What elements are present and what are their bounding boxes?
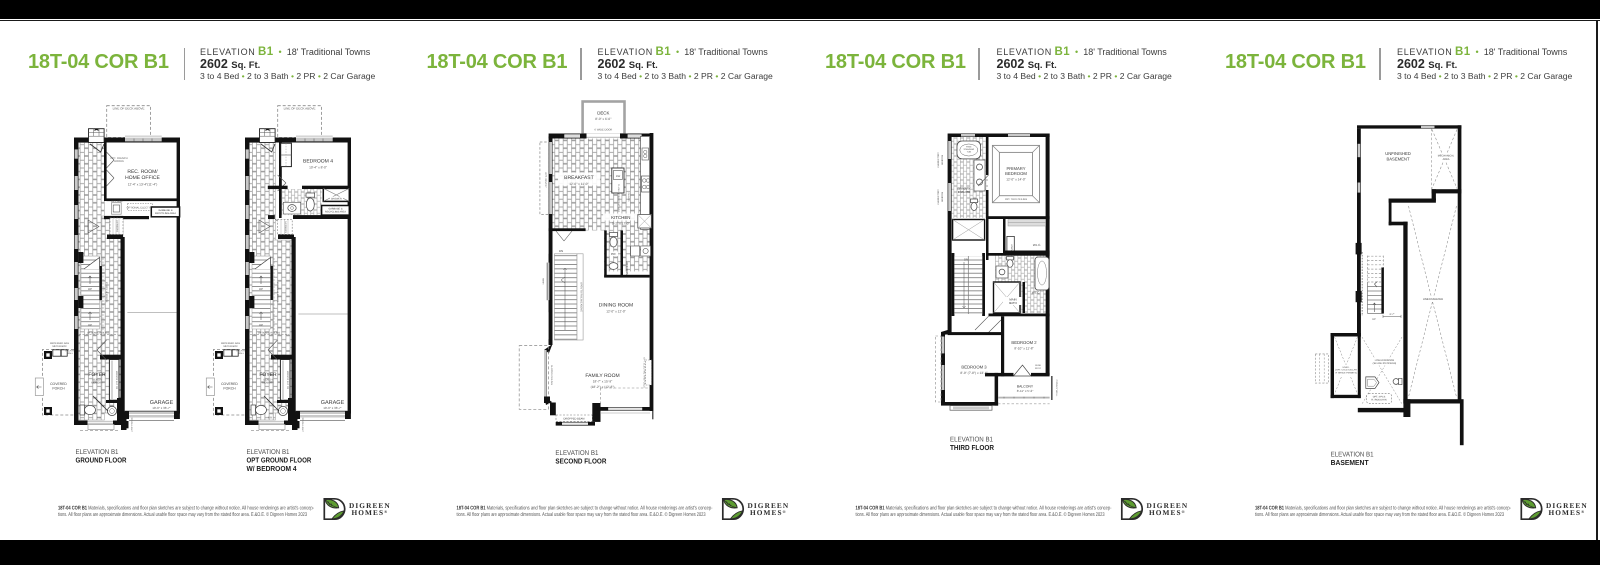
svg-text:12'-0" x 14'-0": 12'-0" x 14'-0" bbox=[1006, 178, 1026, 182]
svg-text:MIRROR SLD DR: MIRROR SLD DR bbox=[286, 371, 289, 390]
svg-text:PORCH: PORCH bbox=[52, 387, 65, 391]
svg-text:UP: UP bbox=[1372, 318, 1376, 321]
svg-text:HALF HT: HALF HT bbox=[65, 350, 75, 353]
svg-text:BASEMENT: BASEMENT bbox=[1386, 157, 1409, 162]
svg-text:OPTIONAL RAILING: OPTIONAL RAILING bbox=[258, 331, 280, 334]
svg-text:TUB: TUB bbox=[967, 151, 972, 154]
svg-text:SHOWER: SHOWER bbox=[331, 197, 342, 200]
svg-text:BEDROOM 4: BEDROOM 4 bbox=[303, 159, 333, 165]
svg-text:BREAKFAST: BREAKFAST bbox=[564, 175, 593, 181]
svg-text:ROOF: ROOF bbox=[1035, 367, 1042, 370]
svg-text:8'-11" x 5'-2": 8'-11" x 5'-2" bbox=[1017, 389, 1034, 393]
svg-text:W/ BEDROOM 4: W/ BEDROOM 4 bbox=[247, 464, 297, 473]
svg-text:SUNK: SUNK bbox=[1035, 364, 1042, 367]
svg-text:IF GRADE PERMITS): IF GRADE PERMITS) bbox=[1335, 371, 1357, 374]
svg-text:P.R: P.R bbox=[97, 417, 101, 420]
svg-text:GROUND FLOOR: GROUND FLOOR bbox=[76, 456, 128, 465]
svg-text:P.R.: P.R. bbox=[611, 252, 616, 256]
svg-text:WINDOW: WINDOW bbox=[941, 154, 944, 165]
svg-text:10'-4" x 8'-0": 10'-4" x 8'-0" bbox=[309, 166, 327, 170]
svg-text:18'-7" x 15'-9": 18'-7" x 15'-9" bbox=[593, 380, 613, 384]
svg-text:OPEN TO RAILING ABOVE: OPEN TO RAILING ABOVE bbox=[579, 282, 582, 312]
svg-text:THIRD FLOOR: THIRD FLOOR bbox=[950, 443, 995, 452]
svg-text:BASEMENT: BASEMENT bbox=[1331, 458, 1370, 467]
svg-text:CLERESTORY: CLERESTORY bbox=[937, 152, 940, 168]
svg-text:P.R: P.R bbox=[268, 417, 272, 420]
svg-text:tions. All floor plans are app: tions. All floor plans are approximate d… bbox=[58, 512, 307, 518]
svg-text:WALL: WALL bbox=[238, 352, 245, 355]
svg-text:STAIRS 14 RISERS: STAIRS 14 RISERS bbox=[105, 282, 108, 303]
svg-text:DN: DN bbox=[964, 258, 968, 262]
svg-text:UNEXCAVATED: UNEXCAVATED bbox=[1423, 297, 1443, 301]
svg-text:WALL: WALL bbox=[67, 352, 74, 355]
svg-text:FOYER: FOYER bbox=[259, 372, 277, 378]
svg-text:LOW HEADROOM: LOW HEADROOM bbox=[1375, 359, 1394, 362]
svg-text:8'-10" x 11'-8": 8'-10" x 11'-8" bbox=[1014, 347, 1033, 351]
svg-text:3'-7": 3'-7" bbox=[1389, 313, 1394, 316]
svg-text:LINEN: LINEN bbox=[542, 277, 545, 284]
svg-text:UP: UP bbox=[88, 287, 92, 291]
svg-text:ENSUITE: ENSUITE bbox=[958, 190, 971, 194]
svg-text:8'-0" (7'-8") x 13'-4": 8'-0" (7'-8") x 13'-4" bbox=[960, 371, 987, 375]
svg-text:12'-4" x 13'-4"(11'-4"): 12'-4" x 13'-4"(11'-4") bbox=[128, 183, 158, 187]
svg-text:AREA: AREA bbox=[1443, 158, 1450, 161]
svg-text:STAIRS 14 RISERS: STAIRS 14 RISERS bbox=[276, 282, 279, 303]
svg-text:LINEN: LINEN bbox=[1010, 244, 1013, 251]
svg-text:BATH: BATH bbox=[1009, 301, 1017, 305]
svg-text:MIRROR SLD DR: MIRROR SLD DR bbox=[115, 371, 118, 390]
svg-text:tions. All floor plans are app: tions. All floor plans are approximate d… bbox=[1255, 512, 1504, 518]
svg-text:12'-0" x 11'-0": 12'-0" x 11'-0" bbox=[569, 182, 588, 186]
svg-text:PORCH: PORCH bbox=[223, 387, 236, 391]
svg-text:HOMES®: HOMES® bbox=[750, 508, 787, 517]
svg-text:W.I.C.: W.I.C. bbox=[1032, 291, 1040, 295]
svg-text:BEDROOM: BEDROOM bbox=[1005, 171, 1027, 176]
svg-text:DOORS: DOORS bbox=[114, 160, 124, 163]
svg-text:WINDOW: WINDOW bbox=[941, 191, 944, 202]
svg-text:HOMES®: HOMES® bbox=[1549, 508, 1586, 517]
svg-text:ISLAND: ISLAND bbox=[627, 193, 630, 202]
svg-text:10'-0" x 36'-7": 10'-0" x 36'-7" bbox=[323, 406, 341, 410]
svg-text:OPT. PANTRY: OPT. PANTRY bbox=[544, 172, 547, 188]
svg-text:OPT. 3-PCS: OPT. 3-PCS bbox=[1373, 396, 1386, 399]
svg-text:R.I ROUGH-IN: R.I ROUGH-IN bbox=[1371, 399, 1387, 402]
svg-text:(18'-2") x (12'-8"): (18'-2") x (12'-8") bbox=[591, 385, 615, 389]
svg-text:FOYER: FOYER bbox=[88, 372, 106, 378]
svg-text:PRIVACY WALL: PRIVACY WALL bbox=[1055, 380, 1058, 397]
svg-text:DN: DN bbox=[559, 249, 563, 253]
svg-text:OPTIONAL RAILING: OPTIONAL RAILING bbox=[87, 331, 109, 334]
svg-text:(OPT. COLD CELLAR: (OPT. COLD CELLAR bbox=[1335, 369, 1357, 372]
svg-text:DW: DW bbox=[616, 175, 621, 178]
svg-text:HOMES®: HOMES® bbox=[352, 508, 389, 517]
svg-text:KITCHEN: KITCHEN bbox=[611, 215, 630, 220]
svg-text:12'-0" x 12'-0": 12'-0" x 12'-0" bbox=[606, 310, 626, 314]
svg-text:BEDROOM 3: BEDROOM 3 bbox=[961, 365, 987, 370]
svg-text:HOME OFFICE: HOME OFFICE bbox=[125, 175, 160, 181]
svg-text:UNEX.: UNEX. bbox=[1343, 366, 1350, 369]
svg-text:SLOPED CEILING: SLOPED CEILING bbox=[550, 365, 553, 385]
svg-text:HALF HT: HALF HT bbox=[236, 350, 246, 353]
svg-text:(36 HIGH BY DESIGN): (36 HIGH BY DESIGN) bbox=[1373, 362, 1397, 365]
svg-text:tions. All floor plans are app: tions. All floor plans are approximate d… bbox=[457, 512, 706, 518]
svg-text:HOMES®: HOMES® bbox=[1149, 508, 1186, 517]
svg-text:BALCONY: BALCONY bbox=[1017, 385, 1034, 389]
svg-text:18T-04 COR B1 Materials, spec: 18T-04 COR B1 Materials, specifications … bbox=[856, 505, 1112, 511]
svg-text:10'-0" x 36'-7": 10'-0" x 36'-7" bbox=[152, 406, 170, 410]
svg-text:UP: UP bbox=[259, 323, 263, 327]
svg-text:COVERED: COVERED bbox=[50, 382, 67, 386]
svg-text:UP: UP bbox=[259, 287, 263, 291]
svg-text:SECOND FLOOR: SECOND FLOOR bbox=[555, 457, 607, 466]
svg-text:FREE: FREE bbox=[966, 146, 972, 149]
svg-text:UP: UP bbox=[88, 323, 92, 327]
svg-text:DECK: DECK bbox=[597, 111, 609, 116]
svg-text:OPT. ELECTRIC FIREPLACE: OPT. ELECTRIC FIREPLACE bbox=[643, 357, 646, 388]
svg-text:OPTIONAL ELECT R.I.: OPTIONAL ELECT R.I. bbox=[127, 206, 154, 209]
svg-text:RECYCLING AREA: RECYCLING AREA bbox=[155, 212, 176, 215]
svg-text:18T-04 COR B1 Materials, spec: 18T-04 COR B1 Materials, specifications … bbox=[1255, 505, 1511, 511]
svg-text:9'-2" x 17'-0": 9'-2" x 17'-0" bbox=[612, 222, 630, 226]
svg-text:OPT. TRAY CEILING: OPT. TRAY CEILING bbox=[1005, 198, 1027, 201]
svg-text:14 RISERS: 14 RISERS bbox=[116, 220, 119, 232]
svg-text:MEMORY: MEMORY bbox=[91, 382, 103, 385]
svg-text:COVERED: COVERED bbox=[221, 382, 238, 386]
svg-text:MEMORY: MEMORY bbox=[262, 382, 274, 385]
svg-text:RECYCLING AREA: RECYCLING AREA bbox=[325, 211, 346, 214]
svg-text:PORCH LIGHT: PORCH LIGHT bbox=[301, 417, 304, 433]
svg-text:PORCH LIGHT: PORCH LIGHT bbox=[130, 417, 133, 433]
svg-text:FAMILY ROOM: FAMILY ROOM bbox=[585, 373, 619, 379]
svg-text:18T-04 COR B1 Materials, spec: 18T-04 COR B1 Materials, specifications … bbox=[58, 505, 314, 511]
svg-text:STANDING: STANDING bbox=[964, 148, 975, 151]
svg-text:8'-0" x 6'-0": 8'-0" x 6'-0" bbox=[595, 117, 611, 121]
svg-text:6' WIDE DOOR: 6' WIDE DOOR bbox=[594, 129, 612, 132]
svg-text:FLUSH BREAKFAST BAR: FLUSH BREAKFAST BAR bbox=[617, 184, 620, 212]
svg-text:METER BOX: METER BOX bbox=[223, 345, 237, 348]
svg-text:LINE OF DECK ABOVE: LINE OF DECK ABOVE bbox=[113, 106, 145, 110]
svg-text:14 RISERS: 14 RISERS bbox=[284, 221, 287, 233]
svg-text:DROPPED BEAM: DROPPED BEAM bbox=[564, 418, 585, 421]
svg-text:CLERESTORY: CLERESTORY bbox=[937, 189, 940, 205]
svg-text:tions. All floor plans are app: tions. All floor plans are approximate d… bbox=[856, 512, 1105, 518]
svg-text:DINING ROOM: DINING ROOM bbox=[599, 303, 633, 309]
svg-text:BEDROOM 2: BEDROOM 2 bbox=[1011, 340, 1037, 345]
svg-text:LINE OF DECK ABOVE: LINE OF DECK ABOVE bbox=[284, 106, 316, 110]
svg-text:W.I.C.: W.I.C. bbox=[1033, 243, 1041, 247]
svg-text:UNFINISHED: UNFINISHED bbox=[1385, 151, 1411, 156]
svg-text:OPT. SINK: OPT. SINK bbox=[111, 200, 123, 203]
svg-text:SERVERY: SERVERY bbox=[625, 261, 629, 275]
svg-text:METER BOX: METER BOX bbox=[52, 345, 66, 348]
svg-text:18T-04 COR B1 Materials, spec: 18T-04 COR B1 Materials, specifications … bbox=[457, 505, 713, 511]
